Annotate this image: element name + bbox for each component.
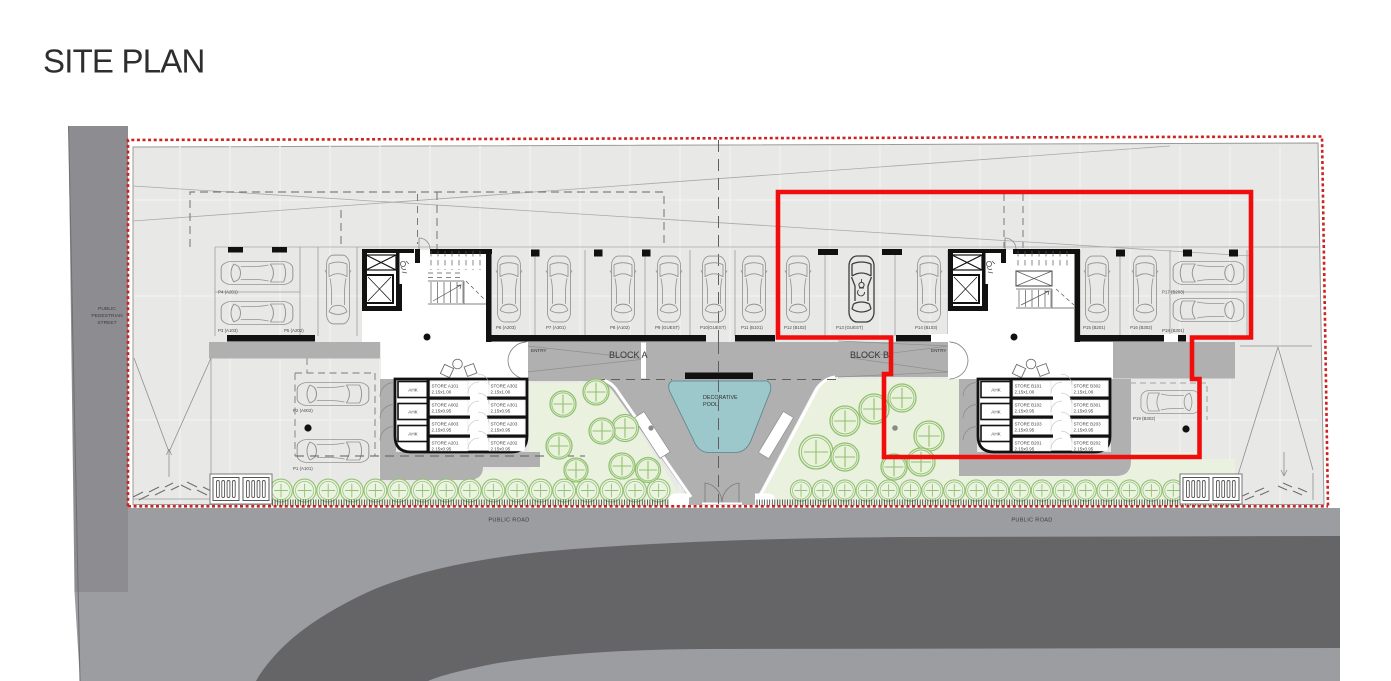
svg-text:STORE A203: STORE A203 [491, 422, 518, 427]
svg-text:AHK: AHK [408, 410, 418, 415]
svg-text:2.15x0.95: 2.15x0.95 [491, 409, 511, 414]
svg-text:2.15x0.95: 2.15x0.95 [1074, 428, 1094, 433]
svg-text:AHK: AHK [991, 432, 1001, 437]
svg-text:POOL: POOL [703, 402, 718, 408]
svg-text:2.15x1.00: 2.15x1.00 [432, 390, 452, 395]
svg-text:P9 (GUEST): P9 (GUEST) [655, 325, 680, 330]
svg-text:PUBLIC ROAD: PUBLIC ROAD [1011, 518, 1052, 524]
svg-text:STORE B103: STORE B103 [1015, 422, 1043, 427]
svg-text:BLOCK A: BLOCK A [609, 350, 648, 360]
svg-text:STORE A202: STORE A202 [491, 441, 518, 446]
svg-text:P18 (B301): P18 (B301) [1162, 328, 1185, 333]
svg-text:AHK: AHK [991, 410, 1001, 415]
svg-text:STORE B203: STORE B203 [1074, 422, 1102, 427]
svg-text:2.15x0.95: 2.15x0.95 [1015, 409, 1035, 414]
svg-text:2.15x0.95: 2.15x0.95 [1074, 447, 1094, 452]
svg-text:2.15x0.95: 2.15x0.95 [1015, 447, 1035, 452]
svg-text:P7 (A301): P7 (A301) [546, 325, 566, 330]
svg-text:STORE B101: STORE B101 [1015, 384, 1043, 389]
svg-text:PUBLIC ROAD: PUBLIC ROAD [488, 518, 529, 524]
svg-text:AHK: AHK [408, 388, 418, 393]
svg-text:2.15x0.95: 2.15x0.95 [432, 447, 452, 452]
svg-text:STORE A301: STORE A301 [491, 403, 518, 408]
svg-text:2.15x0.95: 2.15x0.95 [432, 428, 452, 433]
svg-text:STORE A101: STORE A101 [432, 384, 459, 389]
svg-text:P4 (A201): P4 (A201) [218, 290, 238, 295]
svg-text:P16 (B302): P16 (B302) [1130, 325, 1153, 330]
svg-text:STORE B202: STORE B202 [1074, 441, 1102, 446]
svg-text:SITE PLAN: SITE PLAN [43, 43, 205, 80]
svg-text:P14 (B103): P14 (B103) [915, 325, 938, 330]
svg-text:P15 (B201): P15 (B201) [1083, 325, 1106, 330]
svg-text:BLOCK B: BLOCK B [850, 350, 889, 360]
svg-text:P6 (A203): P6 (A203) [496, 325, 516, 330]
svg-text:AHK: AHK [408, 432, 418, 437]
svg-text:STREET: STREET [97, 320, 116, 326]
svg-text:STORE B301: STORE B301 [1074, 403, 1102, 408]
svg-text:P10(GUEST): P10(GUEST) [700, 325, 726, 330]
svg-text:2.15x0.95: 2.15x0.95 [432, 409, 452, 414]
svg-text:2.15x0.95: 2.15x0.95 [491, 447, 511, 452]
svg-text:DECORATIVE: DECORATIVE [703, 395, 738, 401]
svg-text:P3 (A103): P3 (A103) [218, 328, 238, 333]
svg-text:STORE A201: STORE A201 [432, 441, 459, 446]
svg-text:STORE A002: STORE A002 [432, 403, 459, 408]
svg-text:STORE B201: STORE B201 [1015, 441, 1043, 446]
svg-text:P8 (A102): P8 (A102) [610, 325, 630, 330]
svg-text:P1 (A101): P1 (A101) [293, 466, 313, 471]
svg-text:STORE A302: STORE A302 [491, 384, 518, 389]
svg-text:ENTRY: ENTRY [531, 348, 547, 353]
svg-text:STORE B302: STORE B302 [1074, 384, 1102, 389]
svg-text:P19 (B302): P19 (B302) [1133, 416, 1156, 421]
svg-text:ENTRY: ENTRY [931, 348, 947, 353]
svg-text:P5 (A202): P5 (A202) [284, 328, 304, 333]
svg-text:P12 (B102): P12 (B102) [784, 325, 807, 330]
svg-text:AHK: AHK [991, 388, 1001, 393]
svg-text:P2 (A002): P2 (A002) [293, 408, 313, 413]
svg-text:2.15x0.95: 2.15x0.95 [491, 428, 511, 433]
svg-text:2.15x0.95: 2.15x0.95 [1015, 428, 1035, 433]
svg-text:STORE B102: STORE B102 [1015, 403, 1043, 408]
svg-text:PUBLIC: PUBLIC [98, 306, 116, 312]
svg-text:P17 (B203): P17 (B203) [1162, 290, 1185, 295]
svg-text:2.15x1.00: 2.15x1.00 [491, 390, 511, 395]
svg-text:2.15x1.00: 2.15x1.00 [1074, 390, 1094, 395]
svg-text:2.15x0.95: 2.15x0.95 [1074, 409, 1094, 414]
svg-text:P11 (B101): P11 (B101) [741, 325, 763, 330]
svg-text:2.15x1.00: 2.15x1.00 [1015, 390, 1035, 395]
svg-text:PEDESTRIAN: PEDESTRIAN [91, 313, 123, 319]
svg-text:STORE A003: STORE A003 [432, 422, 459, 427]
svg-text:P13 (GUEST): P13 (GUEST) [836, 325, 864, 330]
